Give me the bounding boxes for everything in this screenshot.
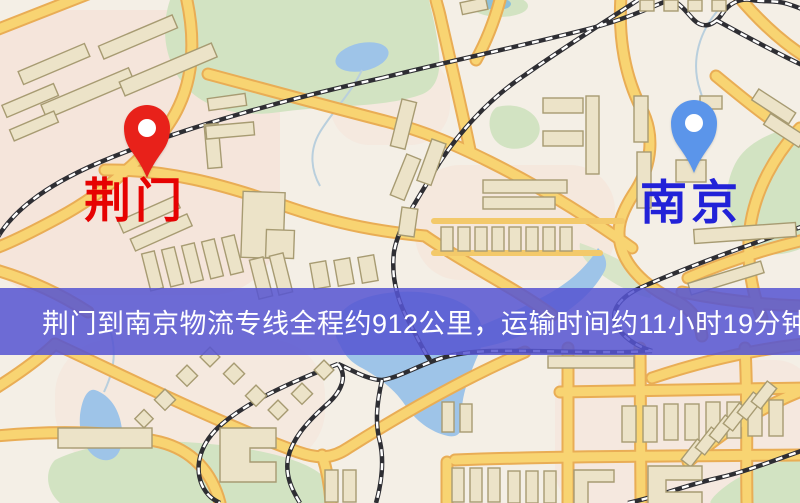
destination-marker-icon (670, 98, 718, 174)
origin-pin-hole (138, 119, 156, 137)
origin-marker-icon (123, 103, 171, 179)
map-canvas (0, 0, 800, 503)
destination-city-label: 南京 (640, 179, 742, 226)
destination-pin-hole (685, 114, 703, 132)
origin-city-label: 荆门 (84, 177, 186, 224)
route-info-banner: 荆门到南京物流专线全程约912公里，运输时间约11小时19分钟. (0, 288, 800, 355)
logistics-route-map: 荆门 南京 荆门到南京物流专线全程约912公里，运输时间约11小时19分钟. (0, 0, 800, 503)
destination-pin-shape (671, 100, 717, 173)
origin-pin-shape (124, 105, 170, 178)
route-info-text: 荆门到南京物流专线全程约912公里，运输时间约11小时19分钟. (42, 302, 800, 341)
